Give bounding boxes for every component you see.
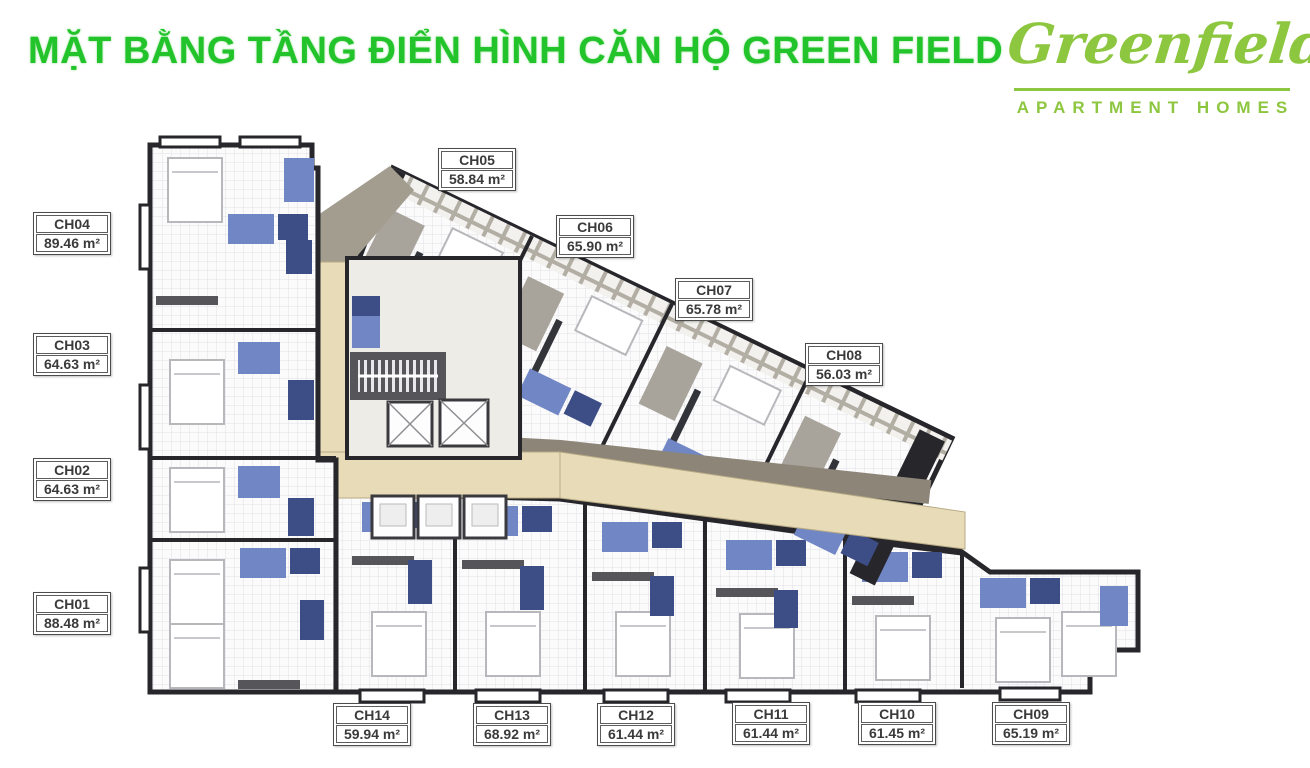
unit-label-ch11: CH11 61.44 m²	[732, 702, 810, 745]
core	[347, 258, 520, 538]
unit-label-ch10: CH10 61.45 m²	[858, 702, 936, 745]
unit-label-ch13: CH13 68.92 m²	[473, 703, 551, 746]
unit-area: 65.78 m²	[678, 300, 750, 318]
unit-label-ch09: CH09 65.19 m²	[992, 702, 1070, 745]
unit-code: CH07	[678, 281, 750, 299]
unit-area: 65.19 m²	[995, 724, 1067, 742]
floor-plan-page: MẶT BẰNG TẦNG ĐIỂN HÌNH CĂN HỘ GREEN FIE…	[0, 0, 1310, 768]
floor-plan-drawing	[0, 0, 1310, 768]
unit-code: CH04	[36, 215, 108, 233]
unit-area: 88.48 m²	[36, 614, 108, 632]
unit-code: CH01	[36, 595, 108, 613]
unit-area: 64.63 m²	[36, 355, 108, 373]
unit-code: CH13	[476, 706, 548, 724]
unit-code: CH06	[559, 218, 631, 236]
unit-area: 68.92 m²	[476, 725, 548, 743]
unit-code: CH08	[808, 346, 880, 364]
unit-area: 61.44 m²	[735, 724, 807, 742]
unit-label-ch08: CH08 56.03 m²	[805, 343, 883, 386]
unit-area: 56.03 m²	[808, 365, 880, 383]
unit-area: 59.94 m²	[336, 725, 408, 743]
stairs-icon	[350, 352, 446, 400]
unit-code: CH09	[995, 705, 1067, 723]
unit-code: CH11	[735, 705, 807, 723]
unit-code: CH05	[441, 151, 513, 169]
unit-code: CH03	[36, 336, 108, 354]
unit-label-ch02: CH02 64.63 m²	[33, 458, 111, 501]
elevator-icon	[388, 402, 432, 446]
unit-area: 58.84 m²	[441, 170, 513, 188]
unit-label-ch04: CH04 89.46 m²	[33, 212, 111, 255]
unit-code: CH12	[600, 706, 672, 724]
unit-area: 64.63 m²	[36, 480, 108, 498]
left-wing	[140, 137, 336, 692]
elevator-icon	[440, 400, 488, 446]
unit-label-ch14: CH14 59.94 m²	[333, 703, 411, 746]
unit-label-ch12: CH12 61.44 m²	[597, 703, 675, 746]
unit-area: 65.90 m²	[559, 237, 631, 255]
lift-lobby	[372, 496, 506, 538]
unit-label-ch07: CH07 65.78 m²	[675, 278, 753, 321]
unit-code: CH02	[36, 461, 108, 479]
unit-code: CH10	[861, 705, 933, 723]
unit-area: 89.46 m²	[36, 234, 108, 252]
unit-label-ch03: CH03 64.63 m²	[33, 333, 111, 376]
unit-label-ch06: CH06 65.90 m²	[556, 215, 634, 258]
unit-area: 61.44 m²	[600, 725, 672, 743]
unit-label-ch01: CH01 88.48 m²	[33, 592, 111, 635]
unit-area: 61.45 m²	[861, 724, 933, 742]
unit-code: CH14	[336, 706, 408, 724]
unit-label-ch05: CH05 58.84 m²	[438, 148, 516, 191]
